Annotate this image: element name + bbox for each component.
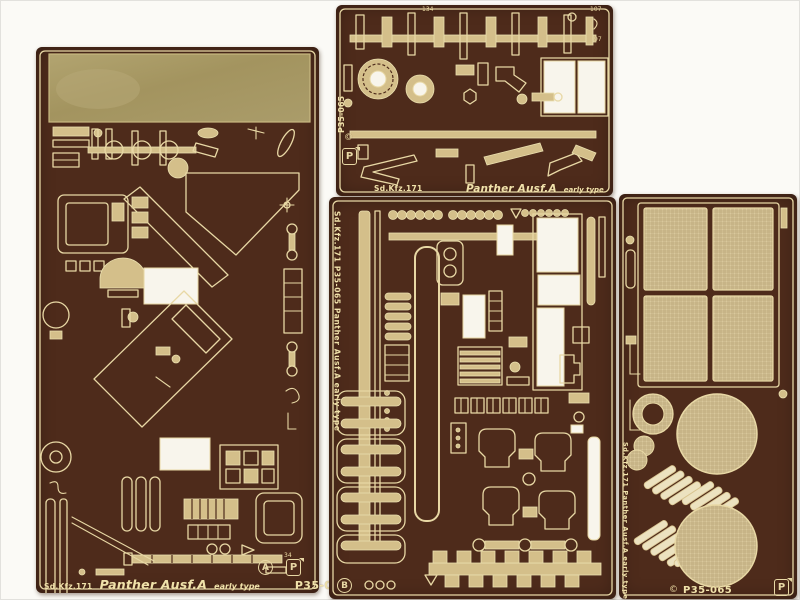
fret-top-middle-footer: Panther Ausf.A early type [466, 184, 604, 195]
spring-parts [337, 391, 405, 563]
fret-b-etch-art [329, 197, 616, 599]
kit-variant: early type [564, 187, 604, 194]
copyright-mark: © [344, 134, 353, 143]
part-brand-logo: P [342, 148, 357, 165]
part-number-label: 134 [422, 7, 433, 13]
brand-letter: P [290, 562, 297, 573]
sheet-letter-badge: A [258, 560, 273, 575]
part-number-label: 107 [590, 7, 601, 13]
kit-variant: early type [214, 583, 260, 591]
edge-marking: Sd.Kfz.171 Panther Ausf.A early type [622, 442, 629, 599]
fret-grilles: Sd.Kfz.171 Panther Ausf.A early type © P… [619, 194, 797, 599]
edge-part-number: P35-065 [338, 96, 346, 133]
brand-letter: P [346, 151, 353, 162]
round-mesh-grille-bottom [675, 505, 757, 587]
edge-marking-text: Sd.Kfz.171 Panther Ausf.A early type [622, 442, 630, 599]
edge-part-number-text: P35-065 [337, 96, 346, 133]
sheet-letter: B [341, 581, 348, 591]
fret-top-middle-etch-art [336, 5, 613, 196]
edge-marking-text: Sd.Kfz.171 P35-065 Panther Ausf.A early … [333, 211, 342, 431]
kit-name: Panther Ausf.A [100, 579, 208, 592]
edge-marking: Sd.Kfz.171 P35-065 Panther Ausf.A early … [333, 211, 341, 431]
vehicle-code: Sd.Kfz.171 [374, 185, 423, 193]
brand-letter: P [778, 582, 785, 593]
kit-name: Panther Ausf.A [466, 184, 557, 195]
fret-a-footer: Sd.Kfz.171 Panther Ausf.A early type P35… [44, 579, 349, 592]
copyright-mark: © [669, 586, 678, 595]
round-mesh-grille-top [677, 394, 757, 474]
fret-b: Sd.Kfz.171 P35-065 Panther Ausf.A early … [329, 197, 616, 599]
vehicle-code: Sd.Kfz.171 [44, 583, 93, 591]
track-comb [429, 551, 601, 587]
fret-top-middle: 134 107 97 P35-065 © P Sd.Kfz.171 Panthe… [336, 5, 613, 196]
bracket-row [455, 398, 548, 413]
fret-a: 34 A P Sd.Kfz.171 Panther Ausf.A early t… [36, 47, 319, 593]
part-number: P35-065 [683, 586, 732, 596]
sheet-letter: A [262, 563, 269, 573]
part-brand-logo: P [774, 579, 789, 596]
photo-etched-sheets-photo: 34 A P Sd.Kfz.171 Panther Ausf.A early t… [0, 0, 800, 600]
part-number-label: 97 [594, 37, 602, 43]
fret-grilles-etch-art [619, 194, 797, 599]
fret-a-etch-art [36, 47, 319, 593]
part-brand-logo: P [286, 559, 301, 576]
sheet-letter-badge: B [337, 578, 352, 593]
rect-mesh-grilles [644, 208, 773, 381]
